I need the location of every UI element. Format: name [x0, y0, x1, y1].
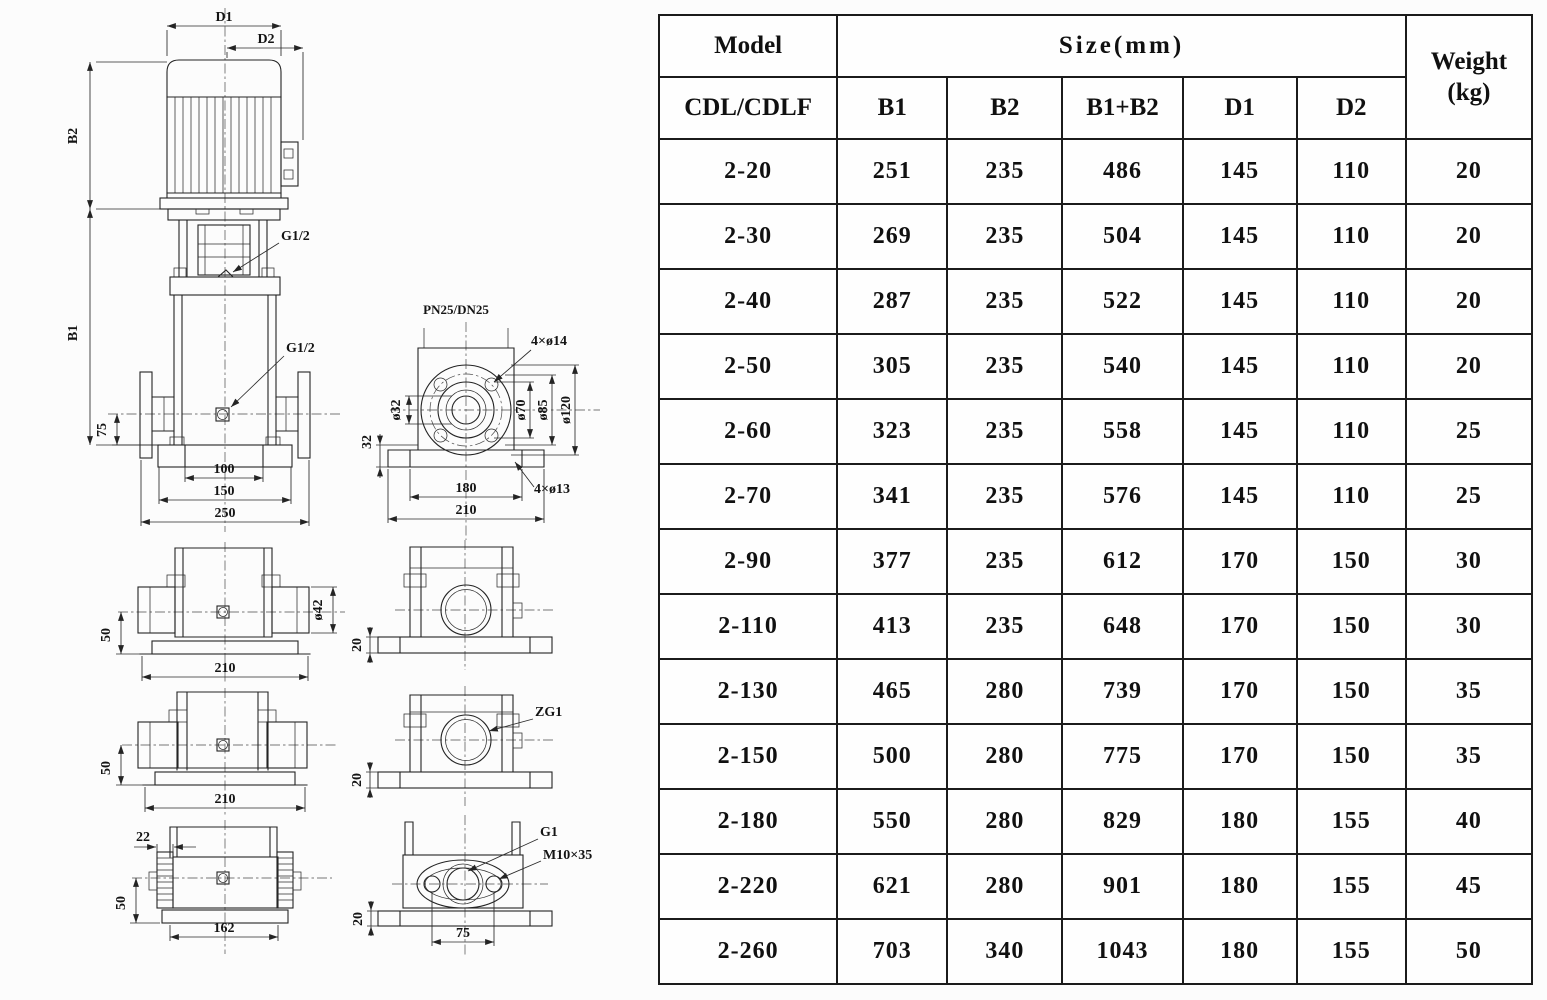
label-zg1: ZG1	[535, 705, 562, 720]
value-cell: 170	[1183, 594, 1297, 659]
bolt-hole	[434, 429, 447, 442]
header-b1: B1	[837, 77, 947, 139]
dim-label-210a: 210	[215, 661, 236, 676]
dim-label-d42: ø42	[311, 600, 326, 621]
header-b2: B2	[947, 77, 1062, 139]
model-cell: 2-130	[659, 659, 837, 724]
model-cell: 2-90	[659, 529, 837, 594]
motor-body	[167, 60, 281, 198]
dim-label-50a: 50	[99, 628, 114, 642]
value-cell: 235	[947, 529, 1062, 594]
value-cell: 621	[837, 854, 947, 919]
value-cell: 20	[1406, 204, 1532, 269]
header-weight: Weight (kg)	[1406, 15, 1532, 139]
pump-dimension-drawing: D1 D2 B2 B1 75 100 150 250 G1/2 G1/2 PN2…	[0, 0, 650, 1000]
value-cell: 145	[1183, 204, 1297, 269]
value-cell: 287	[837, 269, 947, 334]
label-pn25-dn25: PN25/DN25	[423, 302, 489, 317]
value-cell: 703	[837, 919, 947, 984]
dim-label-b2: B2	[66, 128, 81, 144]
dim-label-210b: 210	[215, 792, 236, 807]
model-cell: 2-30	[659, 204, 837, 269]
dimension-table-pane: Model Size(mm) Weight (kg) CDL/CDLF B1 B…	[658, 14, 1533, 985]
datasheet-page: { "table": { "header": { "model": "Model…	[0, 0, 1547, 1000]
label-g1: G1	[540, 825, 558, 840]
value-cell: 540	[1062, 334, 1182, 399]
table-row: 2-3026923550414511020	[659, 204, 1532, 269]
value-cell: 280	[947, 659, 1062, 724]
dim-label-50c: 50	[114, 896, 129, 910]
table-row: 2-260703340104318015550	[659, 919, 1532, 984]
dim-label-50b: 50	[99, 761, 114, 775]
table-row: 2-13046528073917015035	[659, 659, 1532, 724]
view-side-round-a: 20	[350, 540, 555, 670]
value-cell: 305	[837, 334, 947, 399]
header-b1b2: B1+B2	[1062, 77, 1182, 139]
header-size-mm: Size(mm)	[837, 15, 1406, 77]
motor-terminal-box	[281, 142, 298, 186]
value-cell: 35	[1406, 724, 1532, 789]
header-model: Model	[659, 15, 837, 77]
label-4xd14: 4×ø14	[531, 334, 567, 349]
model-cell: 2-60	[659, 399, 837, 464]
value-cell: 558	[1062, 399, 1182, 464]
dimension-table: Model Size(mm) Weight (kg) CDL/CDLF B1 B…	[658, 14, 1533, 985]
value-cell: 901	[1062, 854, 1182, 919]
view-oval-flange: G1 M10×35 20 75	[351, 815, 592, 955]
table-row: 2-22062128090118015545	[659, 854, 1532, 919]
table-row: 2-4028723552214511020	[659, 269, 1532, 334]
value-cell: 110	[1297, 464, 1406, 529]
value-cell: 612	[1062, 529, 1182, 594]
table-row: 2-5030523554014511020	[659, 334, 1532, 399]
dim-label-20a: 20	[350, 638, 365, 652]
dim-label-162: 162	[214, 921, 235, 936]
model-cell: 2-70	[659, 464, 837, 529]
model-cell: 2-220	[659, 854, 837, 919]
value-cell: 150	[1297, 659, 1406, 724]
dim-label-75: 75	[95, 423, 110, 437]
value-cell: 45	[1406, 854, 1532, 919]
value-cell: 110	[1297, 399, 1406, 464]
value-cell: 40	[1406, 789, 1532, 854]
header-weight-line2: (kg)	[1407, 77, 1531, 108]
table-row: 2-11041323564817015030	[659, 594, 1532, 659]
value-cell: 150	[1297, 529, 1406, 594]
model-cell: 2-110	[659, 594, 837, 659]
value-cell: 377	[837, 529, 947, 594]
model-cell: 2-260	[659, 919, 837, 984]
value-cell: 550	[837, 789, 947, 854]
value-cell: 25	[1406, 464, 1532, 529]
value-cell: 829	[1062, 789, 1182, 854]
technical-drawing: D1 D2 B2 B1 75 100 150 250 G1/2 G1/2 PN2…	[0, 0, 650, 1000]
value-cell: 170	[1183, 659, 1297, 724]
value-cell: 145	[1183, 139, 1297, 204]
table-row: 2-7034123557614511025	[659, 464, 1532, 529]
value-cell: 576	[1062, 464, 1182, 529]
label-g12-plug: G1/2	[286, 341, 315, 356]
value-cell: 1043	[1062, 919, 1182, 984]
model-cell: 2-40	[659, 269, 837, 334]
dim-label-250: 250	[215, 506, 236, 521]
view-threaded: 22 50 162	[114, 820, 332, 954]
model-cell: 2-150	[659, 724, 837, 789]
label-m10x35: M10×35	[543, 848, 592, 863]
value-cell: 155	[1297, 854, 1406, 919]
value-cell: 150	[1297, 594, 1406, 659]
view-port-plain: 50 210	[99, 688, 338, 816]
table-row: 2-18055028082918015540	[659, 789, 1532, 854]
value-cell: 235	[947, 269, 1062, 334]
model-cell: 2-50	[659, 334, 837, 399]
value-cell: 110	[1297, 204, 1406, 269]
dim-label-32: 32	[360, 435, 375, 449]
model-cell: 2-20	[659, 139, 837, 204]
value-cell: 739	[1062, 659, 1182, 724]
value-cell: 180	[1183, 919, 1297, 984]
value-cell: 486	[1062, 139, 1182, 204]
header-d2: D2	[1297, 77, 1406, 139]
motor-foot	[160, 198, 288, 220]
value-cell: 20	[1406, 139, 1532, 204]
table-header: Model Size(mm) Weight (kg) CDL/CDLF B1 B…	[659, 15, 1532, 139]
dim-label-b1: B1	[66, 325, 81, 341]
value-cell: 235	[947, 399, 1062, 464]
value-cell: 110	[1297, 139, 1406, 204]
value-cell: 180	[1183, 854, 1297, 919]
dim-label-100: 100	[214, 462, 235, 477]
value-cell: 155	[1297, 919, 1406, 984]
header-cdl-cdlf: CDL/CDLF	[659, 77, 837, 139]
value-cell: 50	[1406, 919, 1532, 984]
value-cell: 235	[947, 464, 1062, 529]
dim-label-20c: 20	[351, 912, 366, 926]
value-cell: 145	[1183, 399, 1297, 464]
label-g12-coupling: G1/2	[281, 229, 310, 244]
bolt-hole	[434, 378, 447, 391]
value-cell: 30	[1406, 529, 1532, 594]
value-cell: 155	[1297, 789, 1406, 854]
value-cell: 30	[1406, 594, 1532, 659]
value-cell: 20	[1406, 334, 1532, 399]
value-cell: 323	[837, 399, 947, 464]
view-side-round-b: ZG1 20	[350, 686, 562, 806]
dim-label-d70: ø70	[514, 400, 529, 421]
table-row: 2-15050028077517015035	[659, 724, 1532, 789]
header-d1: D1	[1183, 77, 1297, 139]
discharge-flange	[298, 372, 310, 458]
dim-label-d120: ø120	[559, 396, 574, 424]
value-cell: 145	[1183, 334, 1297, 399]
value-cell: 775	[1062, 724, 1182, 789]
dim-label-20b: 20	[350, 773, 365, 787]
value-cell: 145	[1183, 464, 1297, 529]
value-cell: 280	[947, 724, 1062, 789]
dim-label-d32: ø32	[389, 400, 404, 421]
value-cell: 504	[1062, 204, 1182, 269]
dim-label-d2: D2	[257, 32, 274, 47]
dim-label-d85: ø85	[536, 400, 551, 421]
value-cell: 235	[947, 204, 1062, 269]
header-weight-line1: Weight	[1407, 46, 1531, 77]
value-cell: 280	[947, 854, 1062, 919]
table-row: 2-6032323555814511025	[659, 399, 1532, 464]
view-flange-top: PN25/DN25 4×ø14 ø32 ø70 ø85 ø120 32	[360, 302, 600, 540]
value-cell: 180	[1183, 789, 1297, 854]
dim-label-210-flange: 210	[456, 503, 477, 518]
view-port-round: ø42 50 210	[99, 542, 345, 684]
value-cell: 110	[1297, 269, 1406, 334]
value-cell: 251	[837, 139, 947, 204]
value-cell: 413	[837, 594, 947, 659]
value-cell: 20	[1406, 269, 1532, 334]
dim-label-150: 150	[214, 484, 235, 499]
value-cell: 170	[1183, 529, 1297, 594]
value-cell: 145	[1183, 269, 1297, 334]
label-4xd13: 4×ø13	[534, 482, 570, 497]
value-cell: 170	[1183, 724, 1297, 789]
table-row: 2-2025123548614511020	[659, 139, 1532, 204]
model-cell: 2-180	[659, 789, 837, 854]
dim-label-d1: D1	[215, 10, 232, 25]
value-cell: 235	[947, 594, 1062, 659]
value-cell: 648	[1062, 594, 1182, 659]
table-row: 2-9037723561217015030	[659, 529, 1532, 594]
dim-label-75b: 75	[456, 926, 470, 941]
view-front: D1 D2 B2 B1 75 100 150 250 G1/2 G1/2	[66, 8, 342, 532]
value-cell: 500	[837, 724, 947, 789]
drain-plug	[216, 408, 229, 421]
value-cell: 280	[947, 789, 1062, 854]
dim-label-22: 22	[136, 830, 150, 845]
spec-table-rows: 2-20251235486145110202-30269235504145110…	[659, 139, 1532, 984]
value-cell: 341	[837, 464, 947, 529]
value-cell: 150	[1297, 724, 1406, 789]
value-cell: 269	[837, 204, 947, 269]
value-cell: 522	[1062, 269, 1182, 334]
value-cell: 465	[837, 659, 947, 724]
value-cell: 110	[1297, 334, 1406, 399]
dim-label-180: 180	[456, 481, 477, 496]
value-cell: 25	[1406, 399, 1532, 464]
value-cell: 235	[947, 139, 1062, 204]
value-cell: 35	[1406, 659, 1532, 724]
value-cell: 235	[947, 334, 1062, 399]
value-cell: 340	[947, 919, 1062, 984]
